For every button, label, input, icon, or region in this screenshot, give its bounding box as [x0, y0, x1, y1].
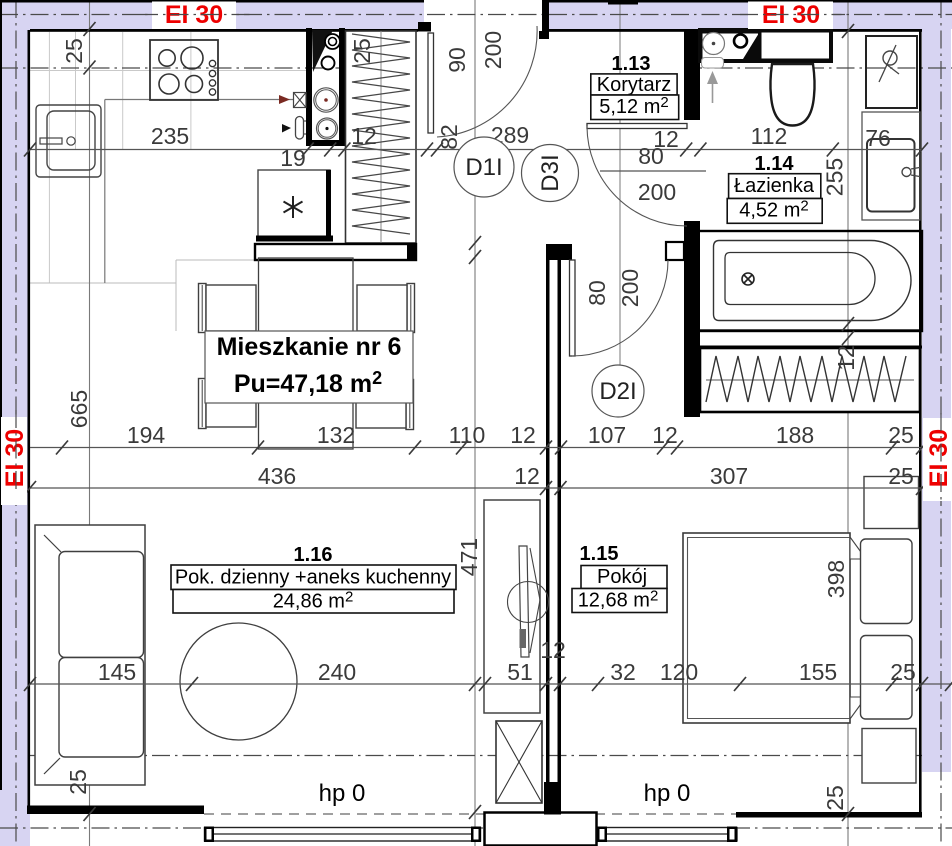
svg-text:24,86 m2: 24,86 m2: [273, 589, 354, 613]
svg-text:12: 12: [540, 637, 566, 663]
svg-text:307: 307: [710, 463, 748, 489]
svg-text:D1I: D1I: [465, 154, 502, 181]
svg-text:12: 12: [514, 463, 540, 489]
svg-text:145: 145: [98, 659, 136, 685]
svg-text:82: 82: [436, 124, 462, 150]
svg-text:12,68 m2: 12,68 m2: [578, 588, 659, 612]
svg-text:12: 12: [652, 422, 678, 448]
svg-text:110: 110: [449, 422, 486, 448]
svg-text:12: 12: [833, 345, 859, 371]
svg-text:Pok. dzienny +aneks kuchenny: Pok. dzienny +aneks kuchenny: [175, 567, 451, 589]
svg-text:235: 235: [151, 123, 189, 149]
svg-text:hp 0: hp 0: [319, 780, 366, 807]
svg-text:4,52 m2: 4,52 m2: [739, 198, 809, 222]
svg-text:Korytarz: Korytarz: [597, 74, 671, 96]
svg-text:25: 25: [888, 463, 914, 489]
svg-text:Łazienka: Łazienka: [734, 175, 815, 197]
svg-text:107: 107: [588, 422, 626, 448]
svg-text:80: 80: [584, 280, 610, 306]
svg-text:436: 436: [258, 463, 296, 489]
svg-text:12: 12: [510, 422, 536, 448]
svg-text:1.13: 1.13: [612, 53, 651, 75]
svg-text:665: 665: [66, 390, 92, 428]
svg-text:1.16: 1.16: [294, 544, 333, 566]
svg-text:188: 188: [776, 422, 814, 448]
svg-text:200: 200: [617, 269, 643, 307]
svg-text:471: 471: [456, 538, 482, 576]
svg-text:90: 90: [444, 47, 470, 73]
svg-text:112: 112: [751, 123, 788, 149]
svg-text:194: 194: [127, 422, 166, 448]
svg-text:255: 255: [822, 158, 848, 196]
svg-text:32: 32: [610, 659, 636, 685]
svg-text:25: 25: [822, 785, 848, 811]
svg-text:D3I: D3I: [537, 154, 564, 191]
svg-text:25: 25: [65, 769, 91, 795]
svg-text:155: 155: [799, 659, 837, 685]
svg-text:1.15: 1.15: [580, 543, 619, 565]
svg-text:EI 30: EI 30: [925, 429, 952, 487]
svg-text:12: 12: [351, 123, 377, 149]
svg-text:5,12 m2: 5,12 m2: [599, 94, 669, 118]
svg-text:D2I: D2I: [599, 378, 636, 405]
svg-text:398: 398: [823, 560, 849, 598]
svg-text:Mieszkanie nr 6: Mieszkanie nr 6: [217, 333, 402, 361]
svg-text:80: 80: [638, 143, 664, 169]
svg-text:hp 0: hp 0: [644, 780, 691, 807]
svg-text:Pu=47,18 m2: Pu=47,18 m2: [234, 368, 382, 398]
svg-text:25: 25: [61, 38, 87, 64]
svg-text:200: 200: [638, 179, 676, 205]
svg-text:240: 240: [318, 659, 356, 685]
svg-text:51: 51: [507, 659, 533, 685]
svg-text:25: 25: [888, 422, 914, 448]
svg-text:1.14: 1.14: [755, 153, 795, 175]
svg-text:76: 76: [865, 125, 891, 151]
svg-text:19: 19: [280, 145, 306, 171]
svg-text:Pokój: Pokój: [597, 566, 647, 588]
svg-text:200: 200: [480, 31, 506, 69]
svg-text:EI 30: EI 30: [1, 429, 29, 487]
svg-text:25: 25: [349, 38, 375, 64]
svg-text:25: 25: [890, 659, 916, 685]
svg-text:120: 120: [660, 659, 698, 685]
svg-text:132: 132: [317, 422, 355, 448]
